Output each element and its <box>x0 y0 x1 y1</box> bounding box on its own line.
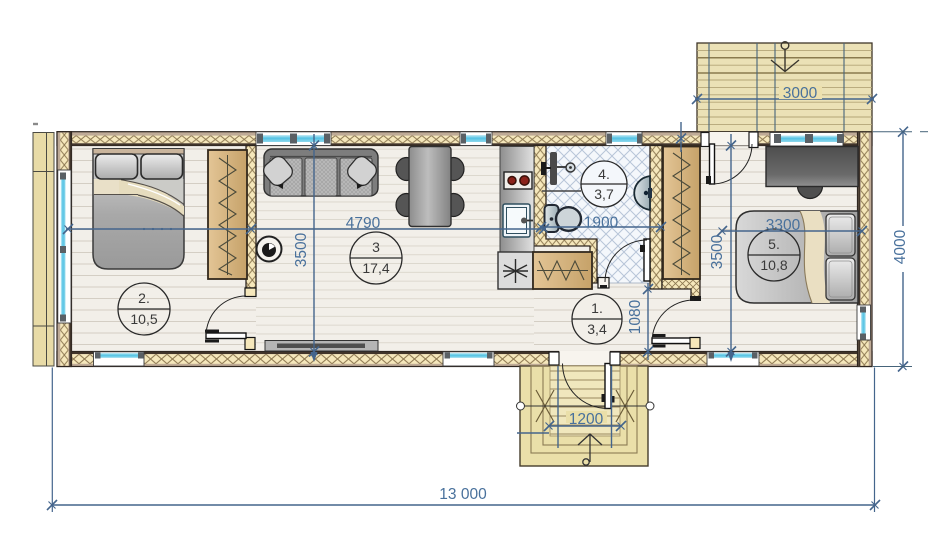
svg-text:4.: 4. <box>598 166 610 182</box>
svg-text:1900: 1900 <box>584 215 619 232</box>
svg-text:13 000: 13 000 <box>439 486 487 503</box>
svg-text:3,7: 3,7 <box>594 186 614 202</box>
svg-text:3,4: 3,4 <box>587 321 607 337</box>
svg-text:3500: 3500 <box>293 232 310 267</box>
svg-text:3300: 3300 <box>766 217 801 234</box>
svg-text:3000: 3000 <box>783 85 818 102</box>
svg-text:3500: 3500 <box>709 234 726 269</box>
svg-text:4790: 4790 <box>346 215 381 232</box>
svg-text:3: 3 <box>372 239 380 255</box>
svg-text:1.: 1. <box>591 300 603 316</box>
svg-text:1080: 1080 <box>627 299 644 334</box>
svg-text:2.: 2. <box>138 290 150 306</box>
svg-text:10,8: 10,8 <box>760 257 787 273</box>
svg-text:10,5: 10,5 <box>130 311 157 327</box>
svg-text:1200: 1200 <box>569 411 604 428</box>
svg-text:4000: 4000 <box>892 229 909 264</box>
svg-text:17,4: 17,4 <box>362 260 389 276</box>
svg-text:5.: 5. <box>768 236 780 252</box>
